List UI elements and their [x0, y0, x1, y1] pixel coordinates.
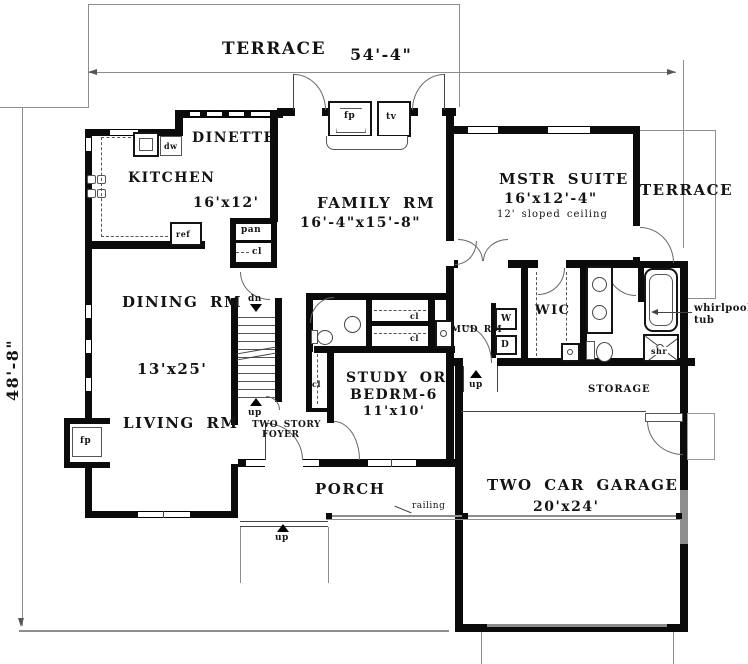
stairs-down-label: dn	[248, 295, 262, 304]
fireplace-label: fp	[80, 437, 91, 446]
tub-basin	[649, 274, 673, 326]
counter-dashed-line	[101, 137, 102, 237]
wall	[64, 418, 70, 468]
porch-label: PORCH	[315, 482, 385, 497]
window	[303, 459, 319, 467]
refrigerator-label: ref	[176, 230, 190, 238]
closet-label: cl	[410, 312, 419, 320]
railing-line	[326, 519, 682, 520]
dining-room-size-label: 13'x25'	[137, 362, 207, 377]
step-line	[240, 527, 241, 583]
height-dimension-line	[22, 107, 23, 626]
foyer-label-line2: FOYER	[262, 431, 300, 440]
up-arrow-icon	[250, 398, 262, 406]
step-line	[240, 521, 328, 522]
window-mullion	[391, 459, 392, 467]
wall	[230, 262, 277, 268]
driveway-line	[673, 632, 674, 664]
wall	[230, 218, 277, 224]
toilet-tank-icon	[586, 341, 595, 360]
extension-line-top-left	[0, 107, 88, 108]
sink-icon	[592, 277, 607, 292]
dryer-label: D	[501, 341, 509, 350]
study-label-line2: BEDRM-6	[350, 388, 438, 402]
wall	[271, 218, 277, 268]
window-mullion	[163, 511, 164, 518]
terrace-top-label: TERRACE	[222, 41, 326, 58]
wic-label: WIC	[535, 304, 571, 317]
railing-post	[462, 513, 468, 519]
railing-leader-line	[394, 506, 411, 514]
up-arrow-icon	[277, 524, 289, 532]
railing-line	[326, 515, 682, 517]
washer-label: W	[501, 315, 512, 324]
terrace-outline-left	[88, 4, 89, 108]
fireplace-label: fp	[344, 112, 355, 121]
utility-icon	[567, 349, 573, 355]
tv-label: tv	[386, 113, 396, 122]
wall	[428, 298, 435, 348]
stoop	[687, 413, 715, 460]
terrace-right-label: TERRACE	[640, 183, 733, 198]
door-arc	[412, 74, 444, 110]
wall	[64, 418, 110, 424]
stairs-up-label: up	[248, 409, 262, 418]
steps-up-label: up	[469, 381, 483, 390]
pantry-label: pan	[241, 226, 261, 235]
terrace-outline-right	[459, 4, 460, 107]
window	[85, 305, 92, 318]
window	[468, 126, 498, 134]
right-terrace-top	[640, 130, 716, 131]
window	[138, 511, 190, 518]
window	[85, 340, 92, 353]
width-dimension-line	[88, 72, 676, 73]
step-line	[497, 366, 498, 392]
master-suite-label: MSTR SUITE	[499, 172, 629, 187]
door-arc	[294, 74, 326, 110]
window-mullion	[244, 110, 251, 118]
sink-basin	[139, 138, 153, 151]
right-terrace-bottom	[687, 298, 716, 299]
extension-line-right	[683, 60, 684, 248]
study-label-line1: STUDY OR	[346, 371, 447, 385]
whirlpool-arrow-icon	[651, 309, 658, 315]
study-size-label: 11'x10'	[363, 405, 425, 418]
door-opening	[265, 459, 303, 467]
railing-post	[676, 513, 682, 519]
door-arc	[647, 421, 683, 455]
family-room-label: FAMILY RM	[317, 196, 435, 211]
door-arc	[640, 227, 674, 263]
counter-dashed-line	[101, 236, 173, 237]
foyer-label-line1: TWO STORY	[252, 421, 321, 430]
door-opening	[633, 226, 640, 257]
burner-icon	[87, 175, 96, 184]
up-arrow-icon	[470, 370, 482, 378]
closet-label: cl	[252, 248, 262, 257]
dinette-label: DINETTE	[192, 131, 276, 145]
door-arc	[483, 239, 508, 261]
driveway-line	[481, 632, 482, 664]
right-terrace-edge	[715, 130, 716, 299]
door-opening	[446, 241, 454, 266]
width-dimension-label: 54'-4"	[350, 47, 412, 63]
porch-up-label: up	[275, 534, 289, 543]
dining-room-label: DINING RM	[122, 295, 242, 310]
kitchen-label: KITCHEN	[128, 171, 215, 185]
dim-arrow-left-icon	[88, 69, 97, 75]
wall	[521, 268, 528, 363]
wall	[370, 321, 430, 326]
height-dimension-label: 48'-8"	[5, 339, 21, 401]
master-ceiling-note: 12' sloped ceiling	[497, 210, 608, 220]
floor-plan: TERRACE 54'-4" 48'-8" TERRACE	[0, 0, 748, 664]
utility-icon	[440, 330, 447, 337]
window-mullion	[200, 110, 207, 118]
door-arc	[458, 239, 483, 261]
dishwasher-label: dw	[164, 142, 177, 150]
dashed-line	[236, 252, 249, 253]
door-arc	[334, 421, 360, 460]
family-room-size-label: 16'-4"x15'-8"	[300, 216, 421, 230]
wall	[275, 298, 282, 402]
ground-line	[19, 630, 449, 632]
window	[85, 138, 92, 151]
garage-size-label: 20'x24'	[533, 500, 599, 514]
window-mullion	[222, 110, 229, 118]
whirlpool-arrow-line	[656, 312, 692, 313]
window	[548, 126, 590, 134]
wall	[633, 126, 640, 226]
door-leaf	[444, 74, 445, 110]
wall	[231, 298, 238, 425]
wall	[455, 358, 463, 632]
wall	[233, 240, 273, 243]
garage-door-opening	[487, 624, 667, 627]
door-arc	[538, 268, 565, 295]
door-opening	[538, 260, 566, 268]
storage-label: STORAGE	[588, 385, 651, 395]
window	[368, 459, 416, 467]
railing-post	[326, 513, 332, 519]
step-line	[463, 366, 464, 392]
mud-room-label: MUD RM	[451, 326, 502, 335]
whirlpool-label-line2: tub	[694, 316, 714, 326]
living-room-label: LIVING RM	[123, 416, 239, 431]
burner-icon	[87, 189, 96, 198]
closet-label: cl	[410, 334, 419, 342]
hearth-outline	[326, 136, 408, 150]
toilet-icon	[317, 330, 333, 345]
whirlpool-label-line1: whirlpool	[694, 304, 748, 314]
sink-icon	[344, 316, 361, 333]
step-line	[328, 527, 329, 583]
window	[246, 459, 266, 467]
closet-label: cl	[312, 380, 321, 388]
garage-label: TWO CAR GARAGE	[487, 478, 678, 493]
kitchen-size-label: 16'x12'	[193, 196, 259, 210]
wall	[327, 346, 334, 423]
counter-dashed-line	[101, 137, 131, 138]
dim-arrow-right-icon	[667, 69, 676, 75]
master-suite-size-label: 16'x12'-4"	[504, 192, 598, 206]
dim-arrow-bottom-icon	[18, 618, 24, 627]
garage-interior-line	[461, 411, 646, 412]
wall	[231, 464, 238, 518]
wall	[446, 116, 454, 464]
shower-label: shr	[650, 347, 668, 355]
wall	[270, 110, 278, 222]
wall	[64, 462, 110, 468]
window	[85, 378, 92, 391]
toilet-icon	[596, 342, 613, 362]
railing-label: railing	[412, 502, 445, 511]
terrace-outline-top	[88, 4, 460, 5]
sink-icon	[592, 305, 607, 320]
door-arc	[310, 297, 334, 323]
wall	[230, 218, 236, 268]
down-arrow-icon	[250, 304, 262, 312]
